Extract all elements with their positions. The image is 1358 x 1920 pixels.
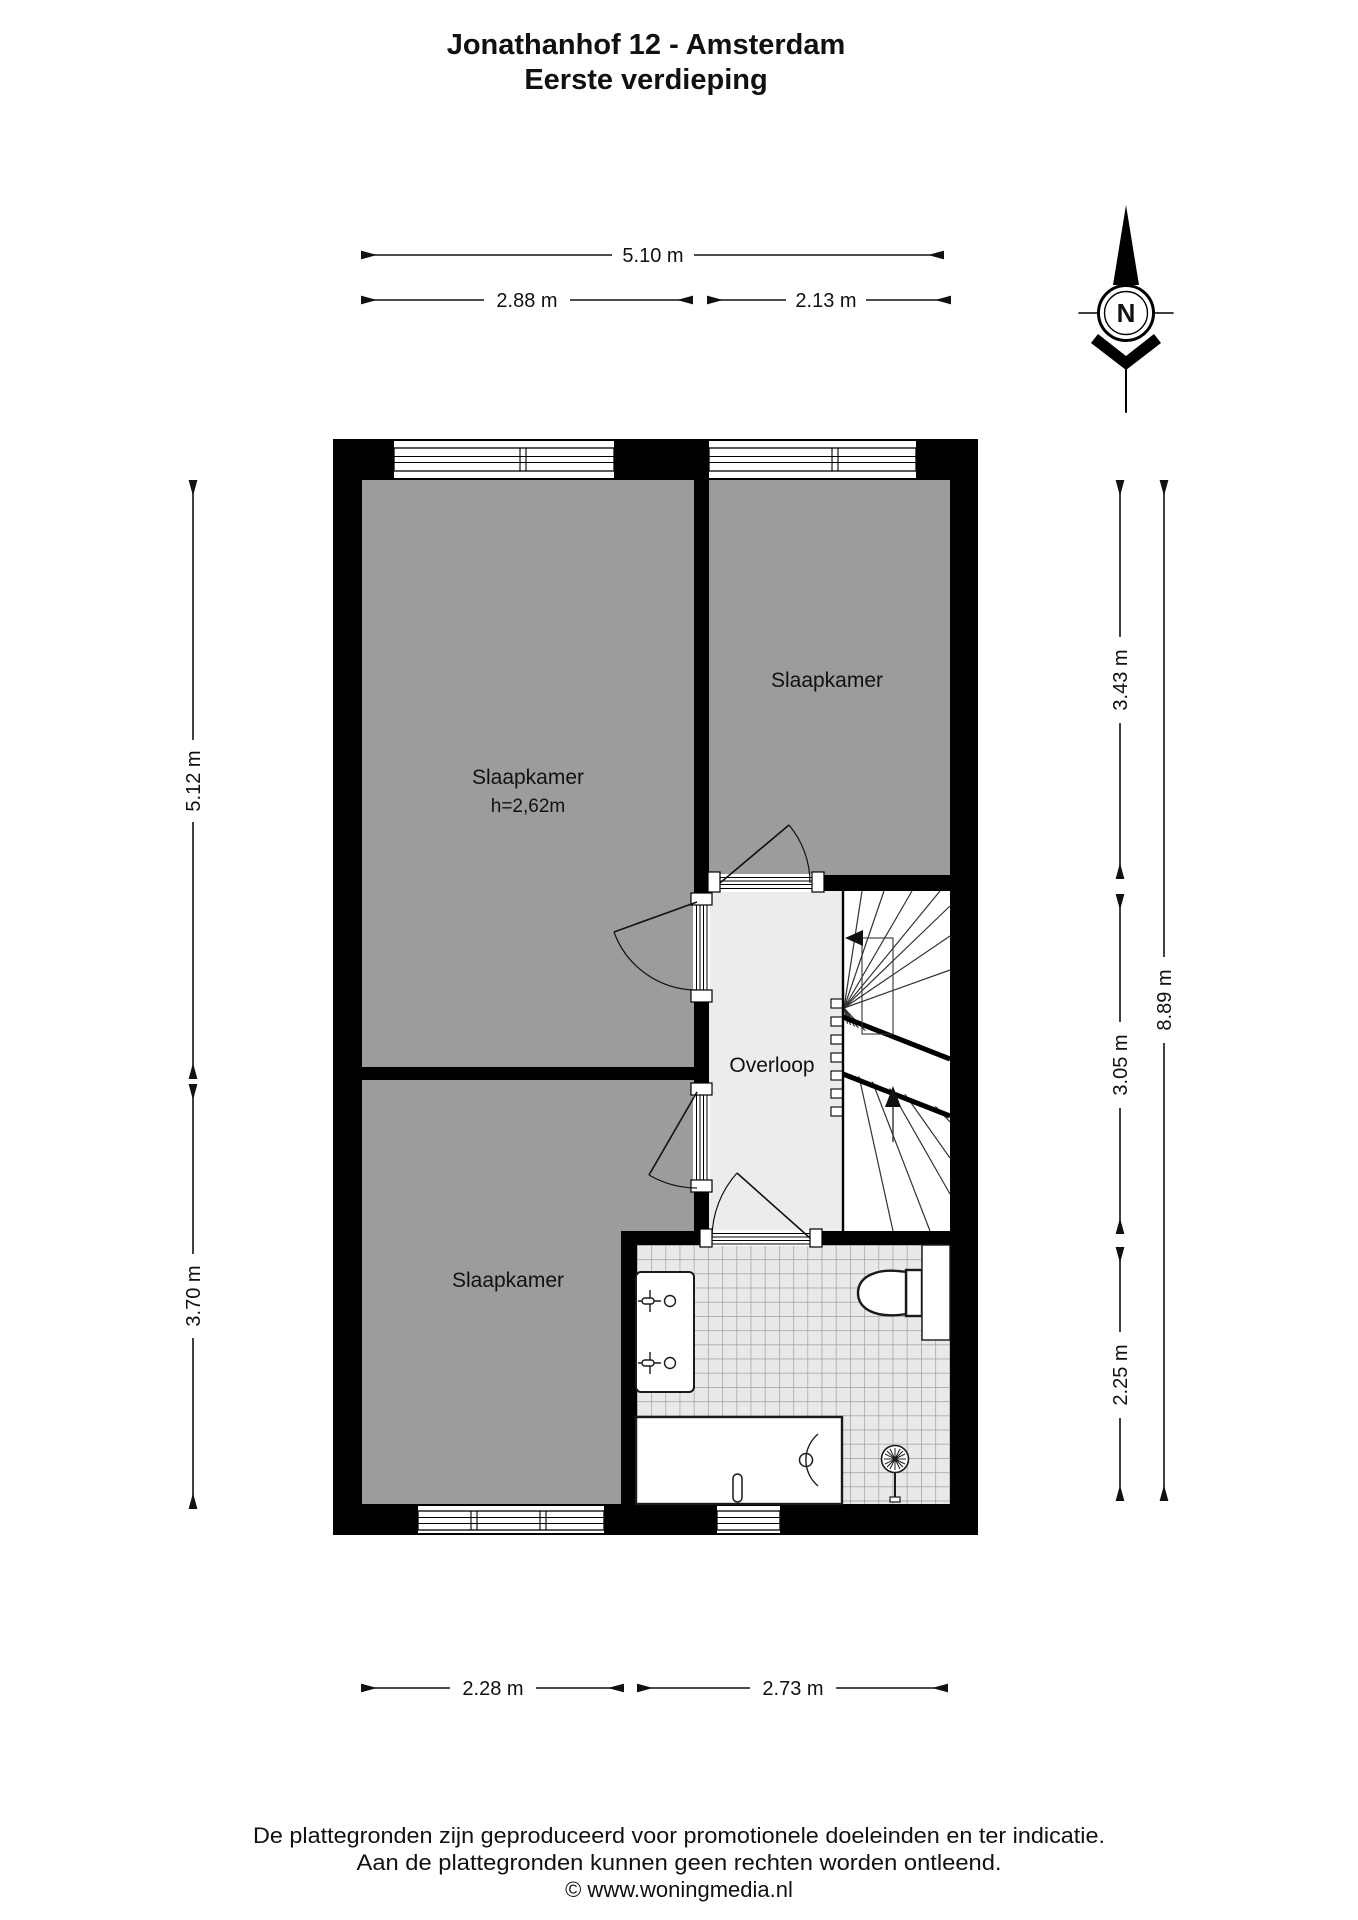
toilet [858,1270,922,1316]
dim-label-top-total: 5.10 m [622,245,683,267]
room-height-note: h=2,62m [491,796,565,817]
page-title: Jonathanhof 12 - Amsterdam [447,29,846,61]
dim-label-top-left: 2.88 m [496,290,557,312]
window-top-left [394,441,614,478]
dim-label-right-middle: 3.05 m [1110,1034,1132,1095]
compass-north-icon: N [1079,205,1173,412]
window-bottom-bathroom [717,1506,780,1533]
compass-north-label: N [1117,298,1136,328]
window-top-right [709,441,916,478]
wall-bathroom-west [621,1231,637,1504]
dim-label-bottom-right: 2.73 m [762,1678,823,1700]
wall-interior-bedrooms [362,1067,694,1080]
bathtub [636,1417,842,1504]
dim-label-left-lower: 3.70 m [183,1265,205,1326]
washbasin-double [636,1272,694,1392]
stair-balusters [831,999,843,1116]
floorplan-canvas: Jonathanhof 12 - Amsterdam Eerste verdie… [0,0,1358,1920]
dim-label-top-right: 2.13 m [795,290,856,312]
wall-exterior-left [333,439,362,1535]
footer-line-1: De plattegronden zijn geproduceerd voor … [253,1823,1105,1848]
bathtub-tap-icon [733,1474,742,1502]
dim-label-bottom-left: 2.28 m [462,1678,523,1700]
dim-label-right-lower: 2.25 m [1110,1344,1132,1405]
dim-label-right-total: 8.89 m [1154,969,1176,1030]
footer-disclaimer: De plattegronden zijn geproduceerd voor … [253,1823,1105,1902]
compass-needle [1113,205,1139,285]
room-label-bedroom-right: Slaapkamer [771,669,883,692]
wall-exterior-right [950,439,978,1535]
floorplan-page: Jonathanhof 12 - Amsterdam Eerste verdie… [0,0,1358,1920]
window-bottom-left [418,1506,604,1533]
bathroom-cabinet [922,1245,950,1340]
dim-label-right-upper: 3.43 m [1110,649,1132,710]
room-label-bedroom-large: Slaapkamer [472,766,584,789]
dim-label-left-upper: 5.12 m [183,750,205,811]
title-block: Jonathanhof 12 - Amsterdam Eerste verdie… [447,29,846,96]
footer-line-2: Aan de plattegronden kunnen geen rechten… [357,1850,1002,1875]
footer-copyright: © www.woningmedia.nl [565,1877,793,1902]
page-subtitle: Eerste verdieping [524,64,767,96]
room-label-bedroom-bottom: Slaapkamer [452,1269,564,1292]
room-label-landing: Overloop [729,1054,814,1077]
